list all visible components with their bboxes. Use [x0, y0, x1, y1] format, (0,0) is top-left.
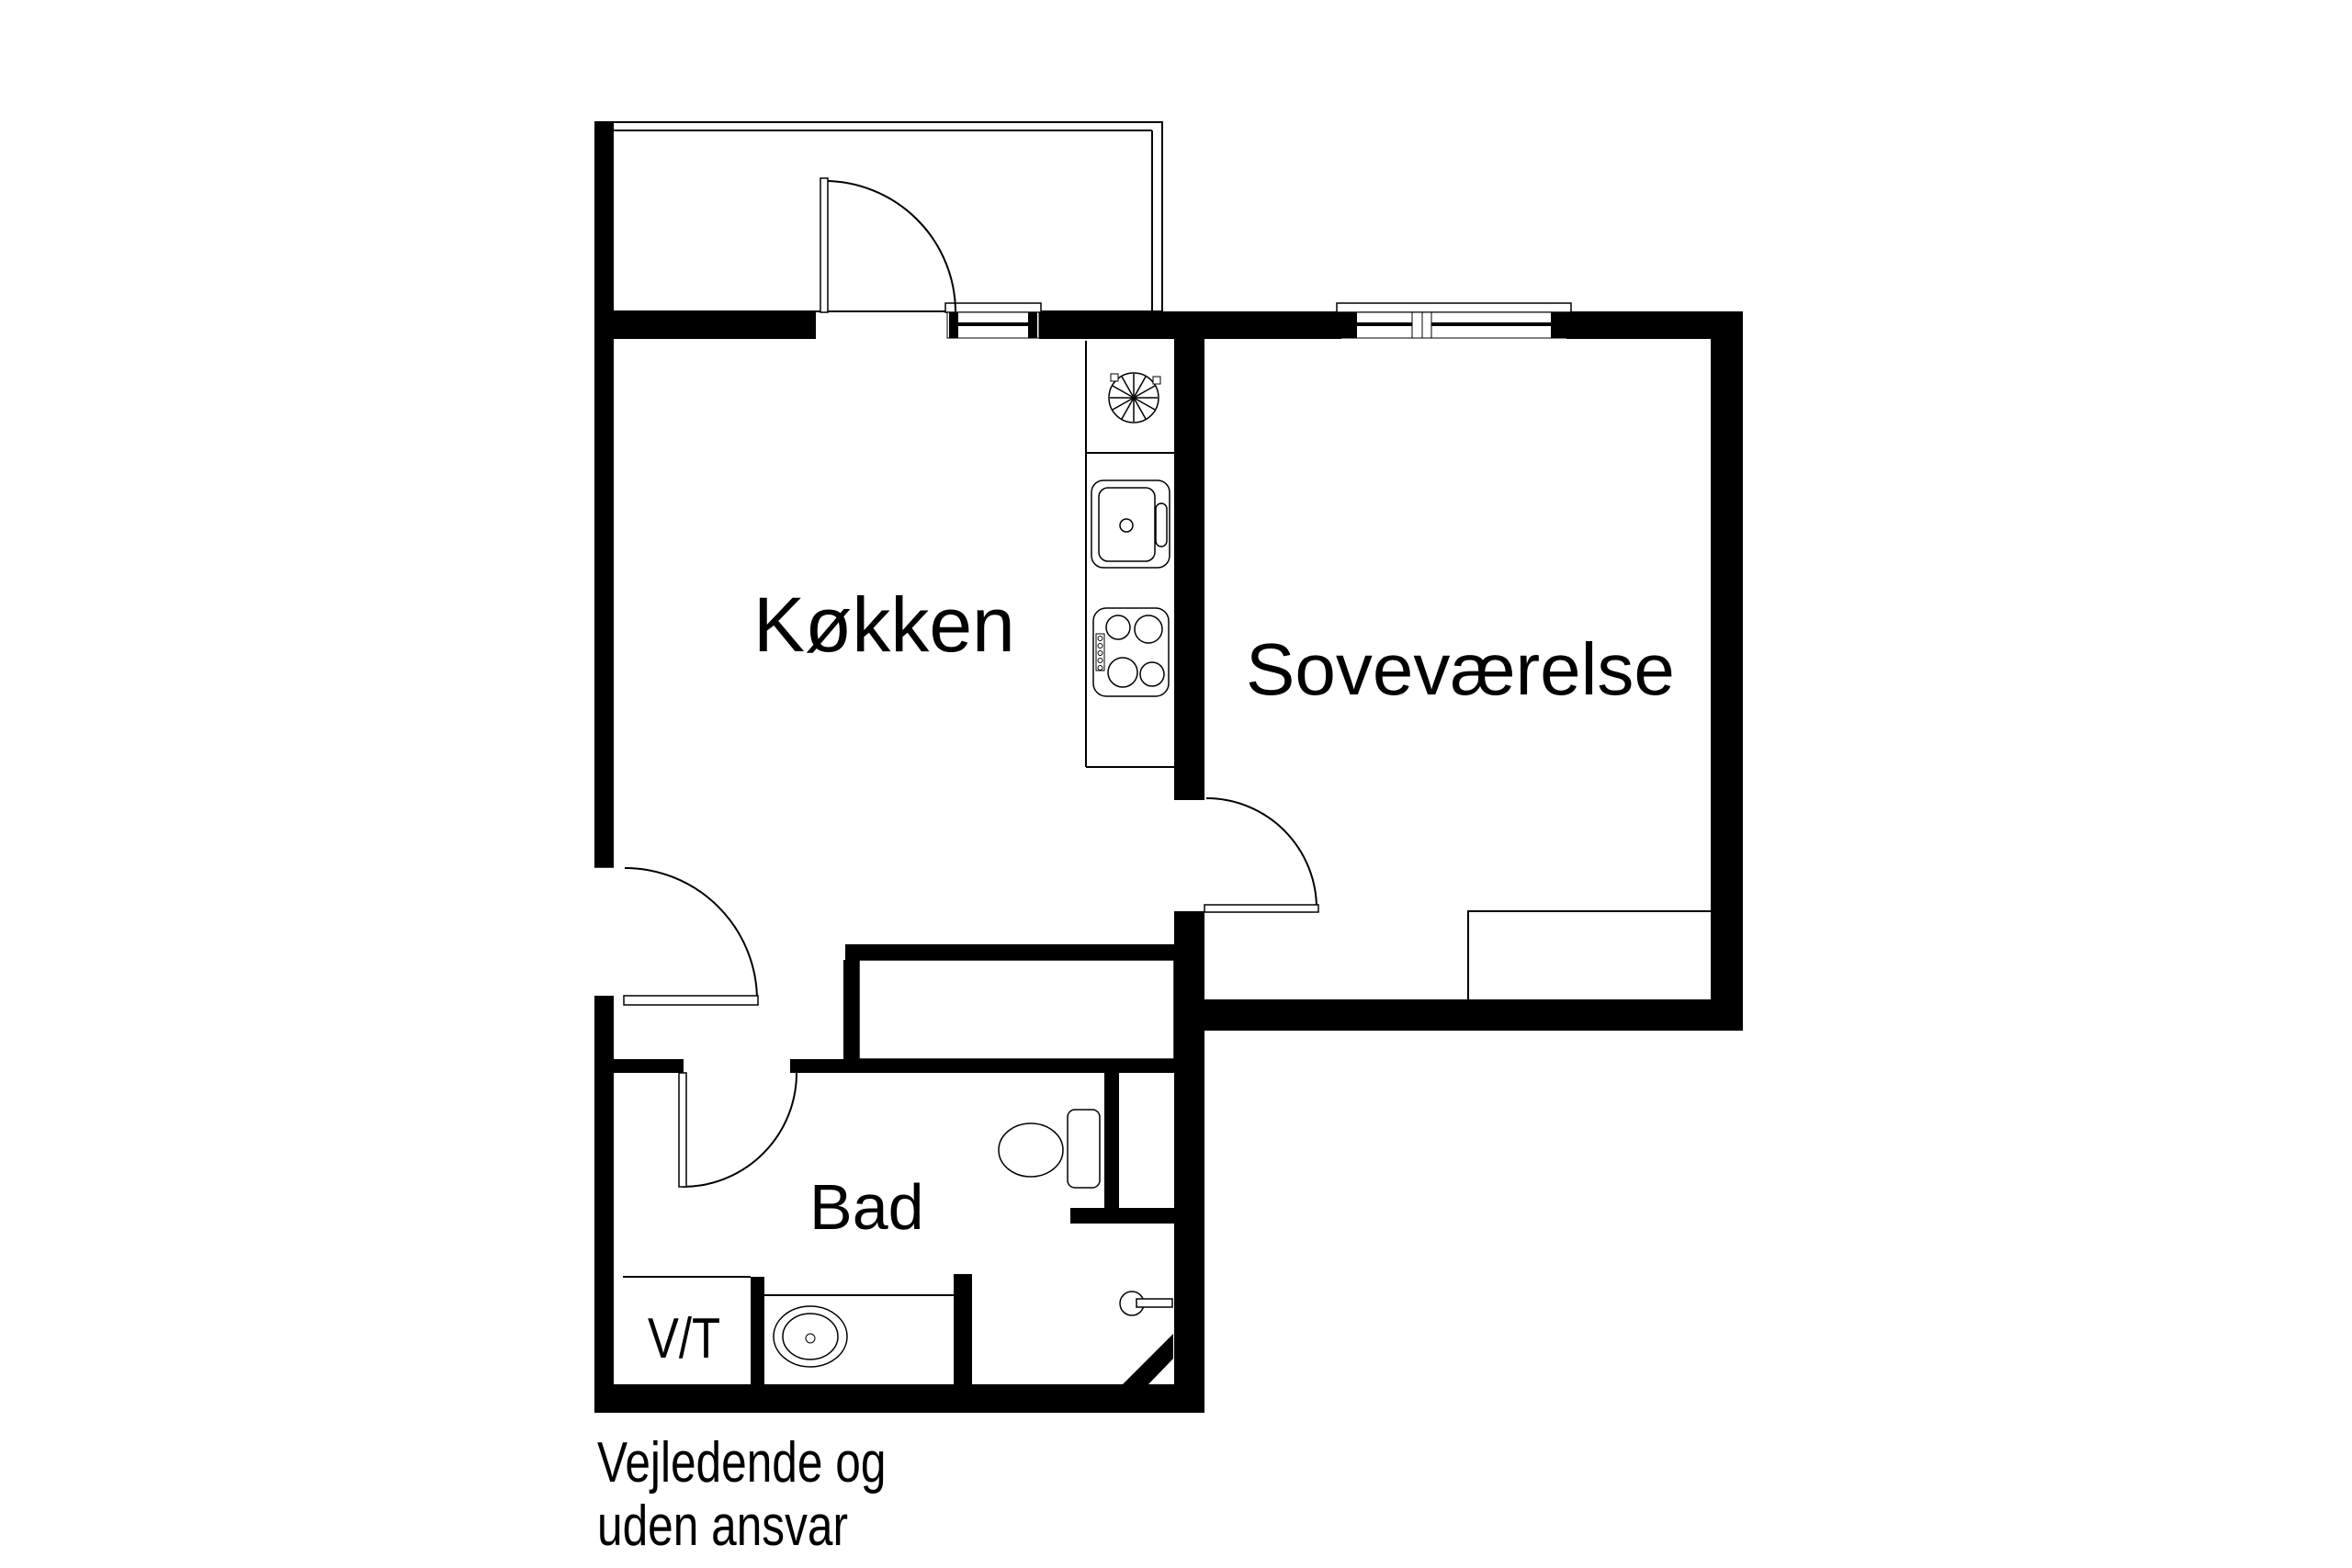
kitchen-sink-icon — [1091, 480, 1170, 568]
room-label-bathroom: Bad — [809, 1175, 924, 1239]
bedroom-window — [1337, 303, 1571, 338]
entry-door — [594, 867, 758, 1005]
bathroom-door — [679, 1073, 797, 1187]
disclaimer-line-2: uden ansvar — [597, 1495, 886, 1558]
disclaimer-line-1: Vejledende og — [597, 1431, 886, 1495]
diagonal-wall — [1123, 1334, 1173, 1384]
disclaimer-text: Vejledende og uden ansvar — [597, 1431, 886, 1558]
closet-niche — [859, 960, 1174, 1059]
floor-plan-page: Køkken Soveværelse Bad V/T Vejledende og… — [0, 0, 2352, 1568]
bedroom-door — [1204, 798, 1318, 912]
floor-drain-icon — [1120, 1292, 1172, 1315]
kitchen-window — [945, 303, 1041, 338]
floor-plan-drawing — [0, 0, 2352, 1568]
bathroom-sink-icon — [774, 1306, 847, 1367]
bed-icon — [1468, 911, 1711, 999]
stove-icon — [1093, 608, 1169, 696]
room-label-kitchen: Køkken — [753, 586, 1015, 663]
balcony-outline — [596, 122, 1162, 311]
toilet-icon — [999, 1110, 1100, 1188]
room-label-vt-closet: V/T — [648, 1311, 720, 1368]
extractor-fan-icon — [1109, 373, 1160, 423]
room-label-bedroom: Soveværelse — [1246, 633, 1675, 706]
